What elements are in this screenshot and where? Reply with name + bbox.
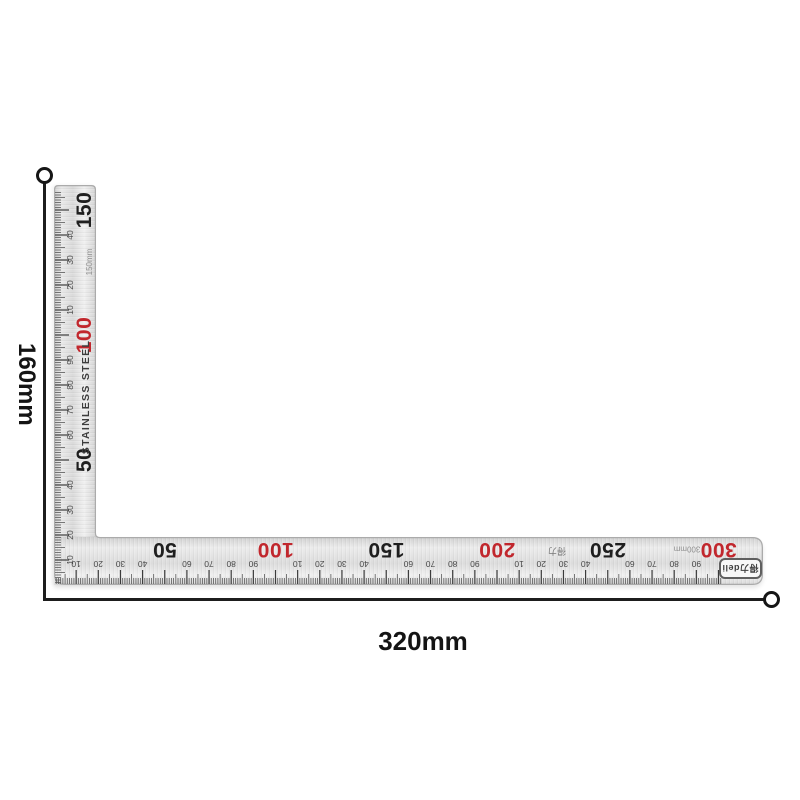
height-dimension-label: 160mm [12,343,40,423]
width-dimension-label: 320mm [363,626,483,657]
dimension-endpoint-circle-right [763,591,780,608]
dimension-line-height [43,183,46,601]
ruler-outline [55,186,763,585]
ruler-vertical-arm [54,185,96,585]
ruler-scale-overlay: 10203040607080901020304050100150STAINLES… [0,0,800,800]
product-image: 160mm 320mm 1020304060708090102030405010… [0,0,800,800]
dimension-endpoint-circle-top [36,167,53,184]
dimension-line-width [43,598,765,601]
brand-badge: 得力deli [719,558,762,579]
brand-badge-label: 得力deli [722,562,759,575]
ruler-horizontal-arm [54,537,763,585]
